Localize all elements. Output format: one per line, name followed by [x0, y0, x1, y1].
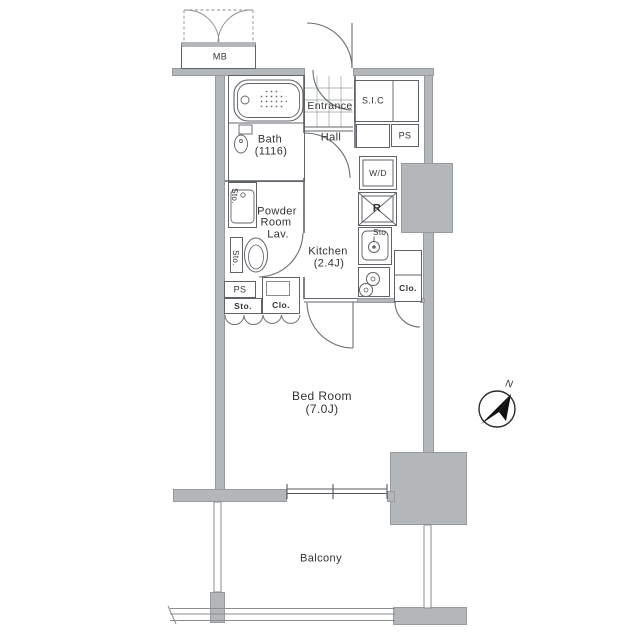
toilet [245, 238, 268, 272]
balcony-window [287, 484, 387, 499]
label-balcony: Balcony [300, 554, 342, 565]
stove-burners [360, 273, 380, 297]
label-ps-lower: PS [234, 286, 247, 295]
label-ps-upper: PS [399, 132, 412, 141]
label-clo-left: Clo. [272, 301, 290, 310]
label-kitchen-size: (2.4J) [314, 259, 345, 270]
entrance-door [307, 23, 352, 110]
entrance-step [305, 127, 353, 131]
label-entrance: Entrance [307, 101, 352, 112]
label-clo-right: Clo. [399, 284, 417, 293]
label-bath-size: (1116) [255, 147, 288, 158]
bedroom-door [307, 302, 353, 348]
label-hall: Hall [321, 133, 342, 144]
label-powder-2: Room [261, 218, 292, 229]
bath-basin [235, 125, 253, 153]
mb-doors [184, 10, 253, 42]
floor-plan: MB Entrance S.I.C PS Hall W/D R Bath (11… [0, 0, 639, 640]
label-vanity-sto: Sto. [230, 188, 238, 204]
closet-right-door [395, 302, 420, 327]
compass [479, 391, 515, 427]
label-bedroom-name: Bed Room [292, 390, 352, 402]
label-kitchen-name: Kitchen [308, 247, 348, 258]
plan-linework [0, 0, 639, 640]
label-sink-sto: Sto. [373, 229, 389, 237]
label-sto-lower: Sto. [234, 302, 252, 311]
bifold-doors [225, 315, 300, 325]
label-toilet-sto: Sto. [231, 250, 239, 266]
label-wd: W/D [369, 169, 387, 178]
label-bath-name: Bath [258, 135, 282, 146]
label-fridge: R [373, 204, 381, 215]
label-sic: S.I.C [362, 97, 384, 106]
label-mb: MB [213, 53, 227, 62]
balcony-railing [168, 606, 395, 624]
label-bedroom-size: (7.0J) [305, 403, 338, 415]
label-north: N [504, 379, 514, 390]
bathtub [234, 80, 303, 121]
bedroom-threshold [304, 299, 357, 303]
label-powder-3: Lav. [267, 230, 289, 241]
